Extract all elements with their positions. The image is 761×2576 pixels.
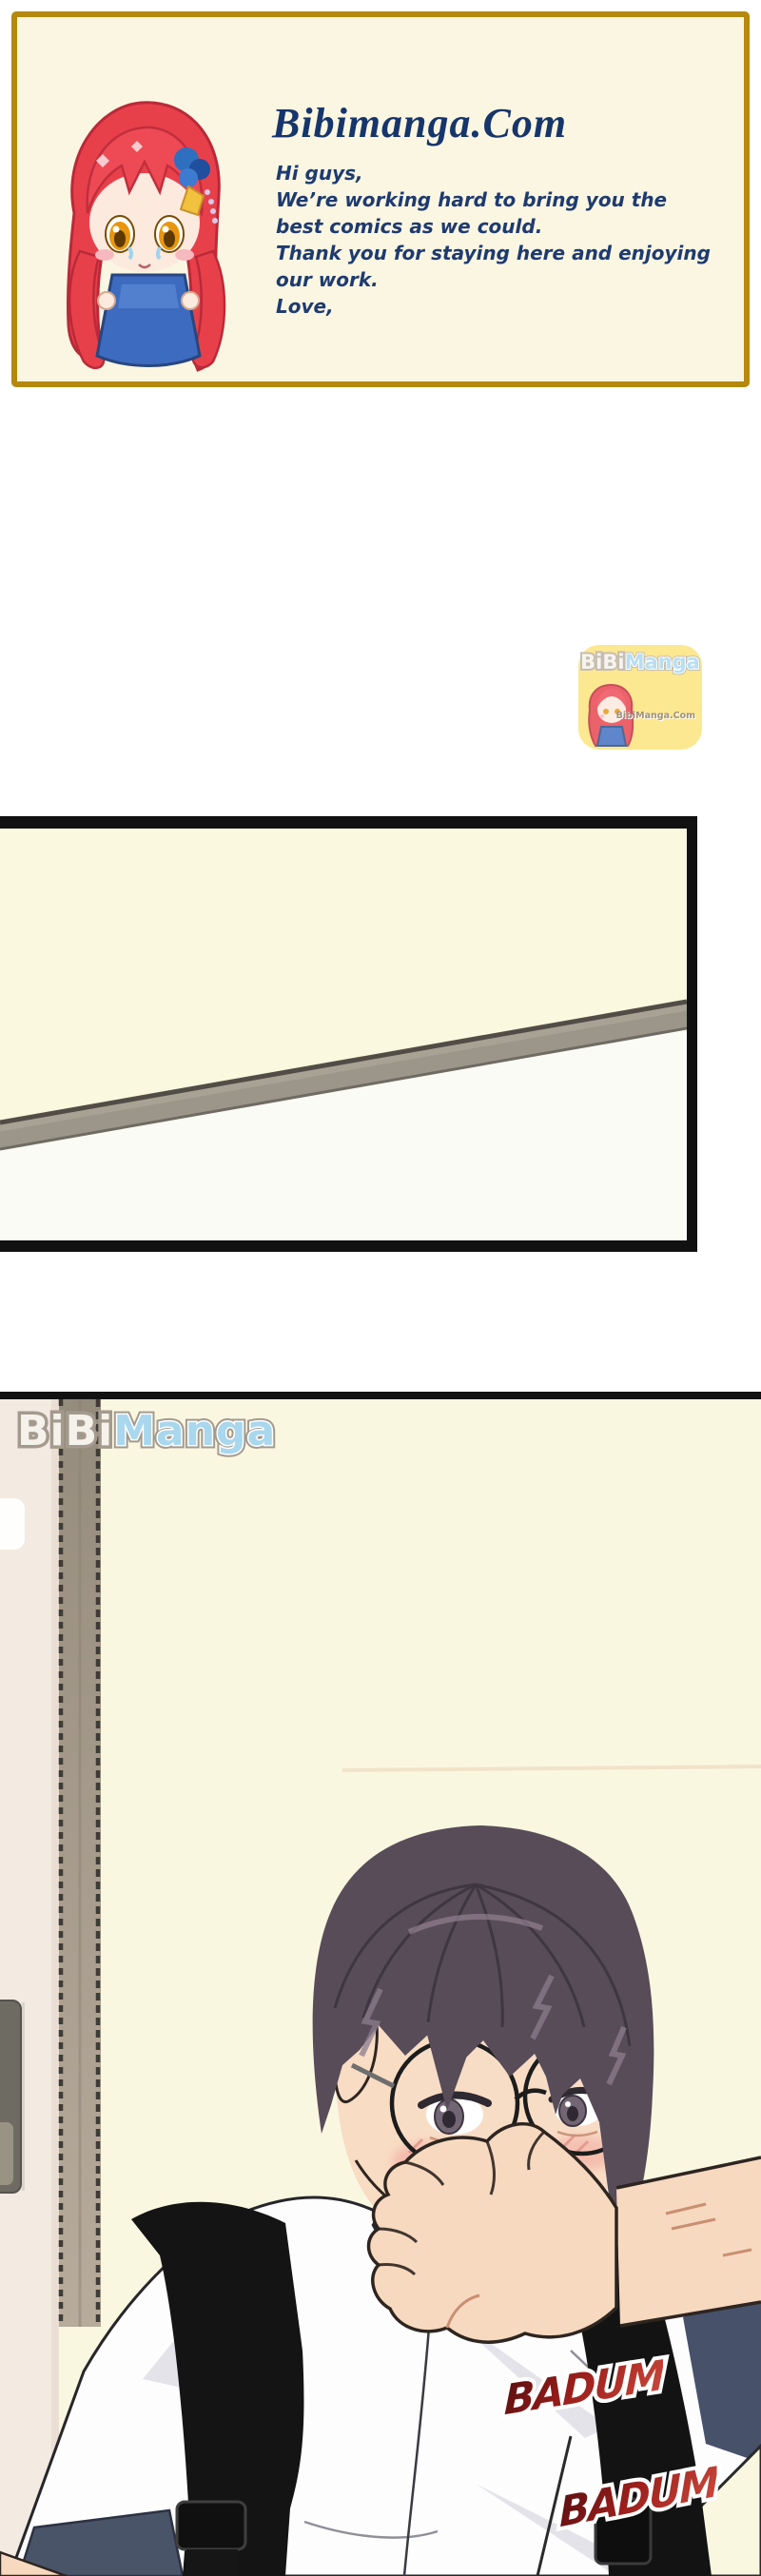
door-panel xyxy=(0,1399,59,2576)
notice-line: Thank you for staying here and enjoying xyxy=(276,240,711,266)
mascot-blush-left xyxy=(95,249,114,261)
door-window xyxy=(0,2000,25,2193)
bibimanga-badge: BiBiBiBiMangaMangaManga BibiManga.Com xyxy=(578,645,702,750)
comic-panel-1 xyxy=(0,816,697,1252)
notice-line: our work. xyxy=(276,266,711,293)
comic-panel-2: BiBiBiBiMangaMangaManga BADUMBADUM BADUM… xyxy=(0,1392,761,2576)
mascot-dress-trim xyxy=(118,284,179,308)
site-title: Bibimanga.Com xyxy=(272,99,567,147)
mascot-tear-right xyxy=(158,247,160,259)
notice-line: We’re working hard to bring you the xyxy=(276,186,711,213)
notice-line: Love, xyxy=(276,293,711,320)
notice-line: Hi guys, xyxy=(276,160,711,186)
mascot-hand-left xyxy=(98,292,115,309)
watermark-bibimanga: BiBiBiBiMangaMangaManga xyxy=(17,1407,276,1455)
door-panel-shade xyxy=(51,1399,59,2576)
mascot-tear-left xyxy=(129,247,131,259)
mascot-chibi-illustration xyxy=(46,80,250,375)
badge-site-url: BibiManga.Com xyxy=(616,711,695,721)
badge-brand: BiBiBiBiMangaMangaManga xyxy=(578,651,702,673)
notice-message: Hi guys, We’re working hard to bring you… xyxy=(276,160,711,320)
strap-buckle-left xyxy=(177,2502,245,2549)
notice-box: Bibimanga.Com Hi guys, We’re working har… xyxy=(11,11,750,387)
notice-line: best comics as we could. xyxy=(276,213,711,240)
manga-page: Bibimanga.Com Hi guys, We’re working har… xyxy=(0,0,761,2576)
door-highlight xyxy=(0,1498,25,1550)
mascot-hand-right xyxy=(182,292,199,309)
mascot-blush-right xyxy=(175,249,194,261)
door-frame-strip xyxy=(59,1399,101,2327)
